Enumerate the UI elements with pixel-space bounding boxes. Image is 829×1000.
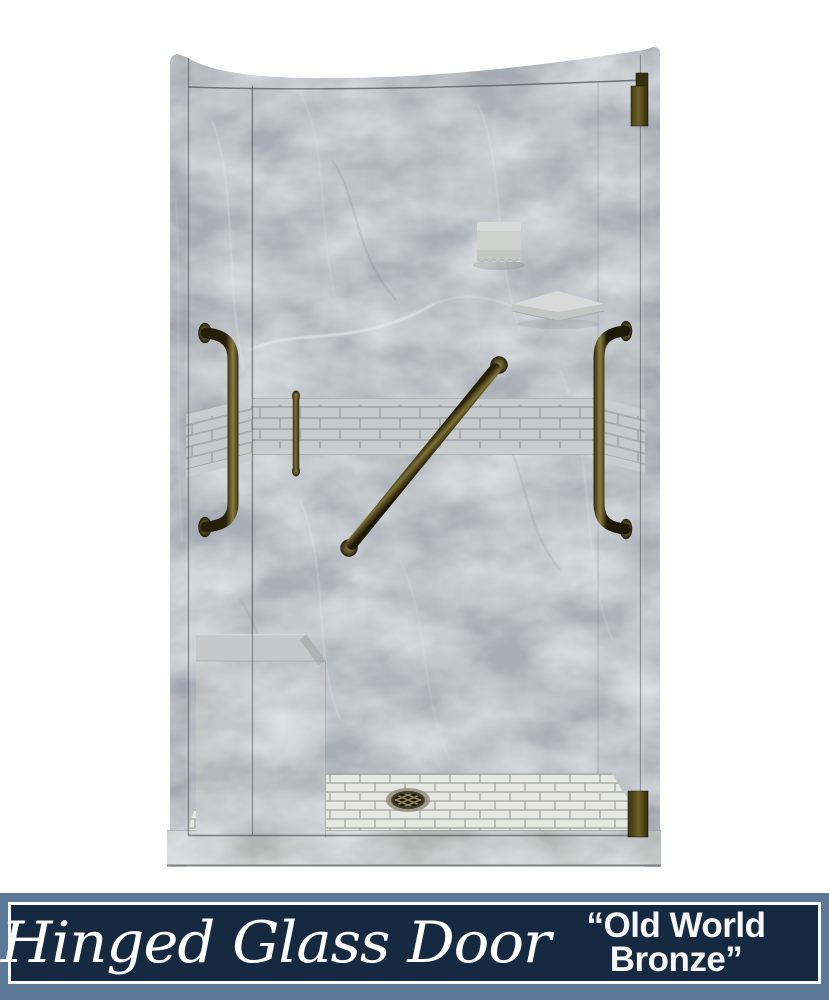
product-type-label: Hinged Glass Door [0, 908, 550, 978]
shower-illustration [0, 0, 829, 893]
finish-name-label: “Old World Bronze” [540, 909, 818, 977]
banner-panel: Hinged Glass Door “Old World Bronze” [8, 902, 821, 984]
product-banner: Hinged Glass Door “Old World Bronze” [0, 893, 829, 1000]
left-wall-return [170, 54, 186, 867]
product-image: Hinged Glass Door “Old World Bronze” [0, 0, 829, 1000]
hinged-glass-door [188, 55, 644, 836]
right-wall-return [644, 47, 660, 867]
door-hinge-bottom [628, 791, 648, 837]
finish-name-line2: Bronze” [610, 940, 743, 979]
door-handle [292, 391, 300, 477]
